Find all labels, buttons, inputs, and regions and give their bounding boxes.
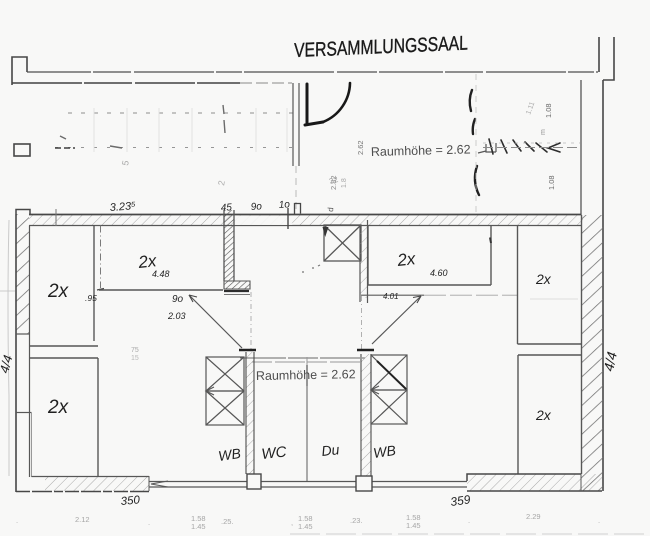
svg-text:m: m [540, 129, 547, 135]
svg-text:Raumhöhe = 2.62: Raumhöhe = 2.62 [371, 142, 471, 159]
svg-text:2.29: 2.29 [526, 512, 541, 521]
svg-text:.: . [598, 516, 600, 525]
svg-text:1.08: 1.08 [547, 175, 556, 190]
svg-text:1.45: 1.45 [191, 522, 206, 531]
svg-text:4.48: 4.48 [152, 269, 170, 279]
svg-text:WC: WC [261, 443, 288, 463]
svg-text:15: 15 [131, 355, 139, 362]
svg-text:2x: 2x [395, 249, 416, 270]
svg-text:.: . [148, 518, 150, 527]
svg-text:3.23⁵: 3.23⁵ [109, 200, 136, 214]
svg-text:2x: 2x [535, 407, 552, 423]
svg-text:2x: 2x [47, 397, 70, 418]
svg-text:Du: Du [321, 441, 341, 459]
svg-text:4.01: 4.01 [383, 292, 399, 301]
svg-text:.: . [16, 516, 18, 525]
svg-text:75: 75 [131, 347, 139, 354]
svg-text:d: d [326, 207, 335, 212]
svg-text:359: 359 [449, 492, 471, 509]
svg-text:2x: 2x [535, 271, 552, 287]
svg-text:350: 350 [120, 494, 141, 508]
svg-text:.95: .95 [85, 293, 97, 303]
svg-text:1o: 1o [278, 199, 290, 211]
svg-text:.: . [468, 516, 470, 525]
svg-text:.25.: .25. [221, 517, 234, 526]
svg-text:4.60: 4.60 [430, 268, 448, 278]
svg-text:1.45: 1.45 [298, 522, 313, 531]
svg-text:2x: 2x [47, 281, 70, 302]
svg-text:2.12: 2.12 [75, 515, 90, 524]
svg-text:,: , [291, 518, 293, 527]
svg-text:2.62: 2.62 [356, 140, 365, 155]
svg-text:1.8: 1.8 [341, 178, 348, 188]
svg-text:9o: 9o [250, 201, 262, 213]
svg-text:WB: WB [217, 445, 242, 464]
svg-text:2.03: 2.03 [167, 311, 186, 321]
svg-text:WB: WB [372, 442, 397, 461]
svg-text:Raumhöhe = 2.62: Raumhöhe = 2.62 [256, 367, 356, 383]
svg-text:1.08: 1.08 [544, 103, 553, 118]
svg-text:.23.: .23. [350, 516, 363, 525]
svg-text:1.45: 1.45 [406, 521, 421, 530]
svg-text:9o: 9o [172, 294, 184, 305]
